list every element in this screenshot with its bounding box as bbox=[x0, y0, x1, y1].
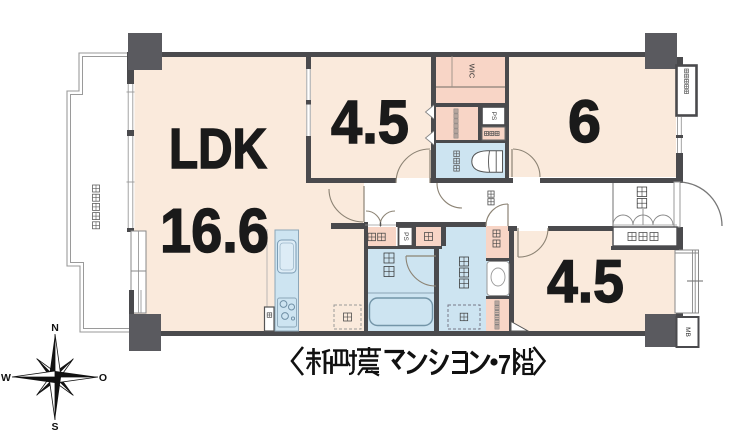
svg-text:4.5: 4.5 bbox=[331, 88, 409, 156]
svg-text:MB: MB bbox=[684, 327, 691, 337]
svg-text:LDK: LDK bbox=[169, 117, 267, 181]
svg-text:S: S bbox=[51, 421, 58, 433]
svg-text:O: O bbox=[99, 372, 107, 384]
svg-text:WIC: WIC bbox=[468, 64, 477, 79]
svg-text:6: 6 bbox=[568, 88, 601, 155]
svg-text:4.5: 4.5 bbox=[547, 248, 624, 315]
svg-text:16.6: 16.6 bbox=[160, 197, 269, 266]
svg-text:7: 7 bbox=[498, 349, 511, 380]
svg-text:PS: PS bbox=[402, 232, 409, 241]
svg-text:W: W bbox=[1, 372, 11, 384]
svg-text:PS: PS bbox=[490, 112, 497, 121]
svg-text:N: N bbox=[51, 322, 59, 334]
